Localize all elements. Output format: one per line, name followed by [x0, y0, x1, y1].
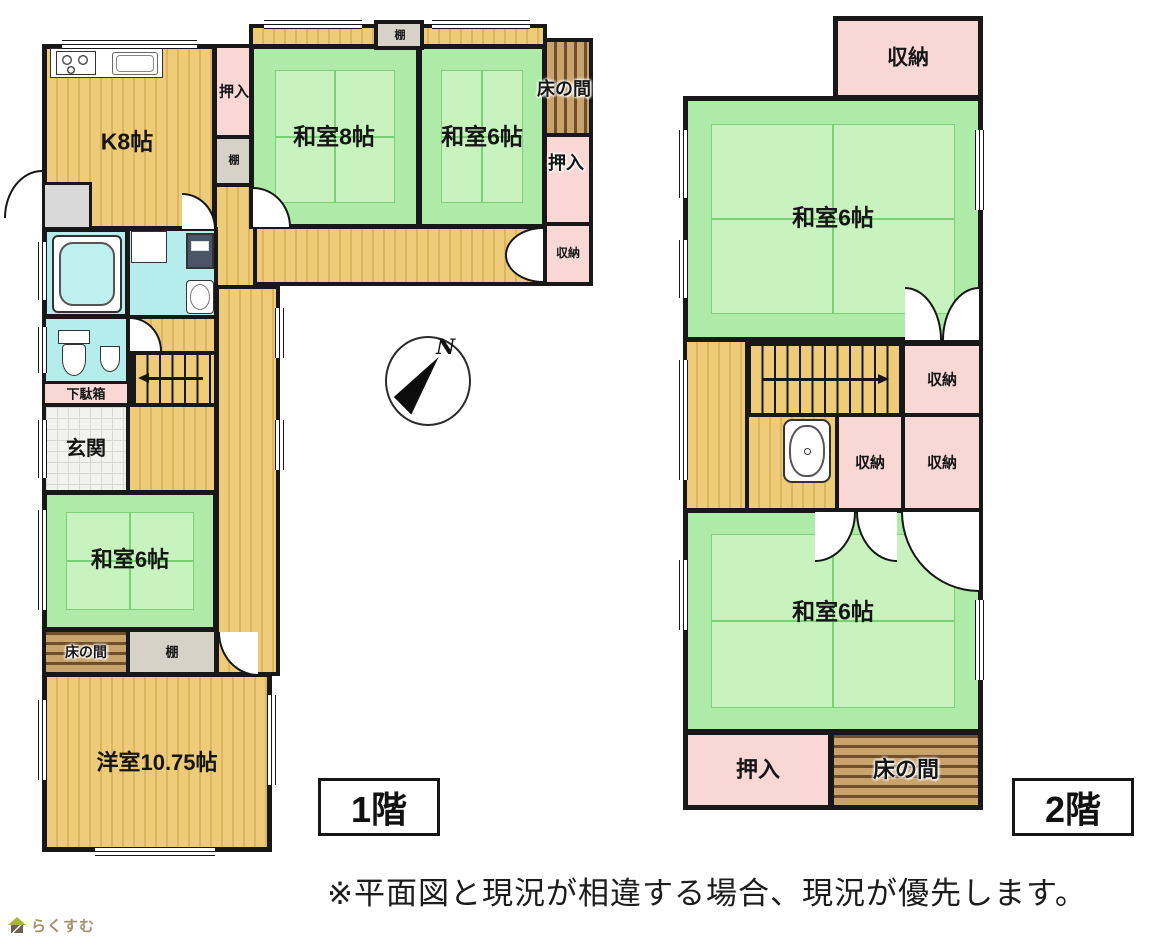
window	[38, 327, 47, 373]
label-genkan: 玄関	[66, 439, 106, 459]
window	[975, 130, 984, 210]
washing-machine-icon	[131, 231, 167, 263]
label-washitsu6-lower-2f: 和室6帖	[792, 601, 874, 624]
toilet-bowl	[62, 344, 86, 376]
label-tokonoma-right: 床の間	[537, 80, 591, 98]
sink-drain-2f	[804, 448, 811, 455]
window	[275, 308, 284, 358]
window	[264, 20, 362, 29]
label-tana-engawa: 棚	[395, 31, 406, 42]
washroom-sink-slot	[191, 241, 209, 251]
toilet-icon	[58, 330, 90, 344]
label-kitchen: K8帖	[101, 131, 153, 154]
logo-text: らくすむ	[31, 915, 95, 936]
bathtub-inner	[59, 242, 115, 306]
compass	[385, 336, 471, 426]
window	[38, 700, 47, 780]
floor2-plan: 収納 和室6帖 収納 収納 収納 和室6帖 押入 床の間	[0, 0, 1165, 944]
label-tana-kitchen: 棚	[229, 156, 240, 167]
label-oshiire-right: 押入	[548, 154, 584, 172]
label-washitsu6-mid: 和室6帖	[91, 549, 169, 571]
window	[38, 420, 47, 478]
label-getabako: 下駄箱	[66, 388, 105, 401]
label-tokonoma-2f: 床の間	[873, 759, 939, 781]
label-oshiire-kitchen: 押入	[219, 85, 249, 100]
disclaimer-text: ※平面図と現況が相違する場合、現況が優先します。	[327, 868, 1087, 913]
label-shuunou-mid-right-2f: 収納	[927, 456, 957, 471]
window	[679, 240, 688, 298]
label-shuunou-right: 収納	[556, 247, 580, 259]
window	[38, 242, 47, 300]
stairs-arrow-line	[148, 377, 203, 380]
window	[95, 847, 215, 856]
window	[679, 130, 688, 198]
label-shuunou-mid-2f: 収納	[855, 456, 885, 471]
window	[679, 360, 688, 480]
rakusumu-logo: らくすむ	[8, 915, 95, 936]
washroom-sink-icon	[186, 233, 214, 269]
label-tana-mid: 棚	[165, 646, 178, 659]
house-body-icon	[11, 925, 23, 933]
stairs-arrow-head-2f	[878, 374, 889, 384]
label-shuunou-top-2f: 収納	[887, 48, 929, 69]
stove-icon	[56, 51, 96, 75]
label-oshiire-2f: 押入	[736, 759, 780, 781]
label-tokonoma-mid: 床の間	[65, 645, 107, 659]
label-youshitsu: 洋室10.75帖	[96, 752, 217, 774]
floorplan-page: { "floor1": { "tag": "1階", "rooms": { "k…	[0, 0, 1165, 944]
window	[975, 600, 984, 680]
stairs-arrow-line-2f	[762, 378, 880, 381]
window	[432, 20, 530, 29]
floor1-tag-box: 1階	[318, 778, 440, 836]
kitchen-sink-basin	[116, 55, 154, 72]
label-shuunou-stairs-2f: 収納	[927, 373, 957, 388]
window	[62, 40, 197, 49]
floor2-tag-label: 2階	[1045, 781, 1101, 833]
label-washitsu6-upper-2f: 和室6帖	[792, 207, 874, 230]
floor1-tag-label: 1階	[351, 781, 407, 833]
hand-basin-icon	[100, 346, 120, 372]
label-washitsu6-upper: 和室6帖	[441, 126, 523, 149]
label-washitsu8: 和室8帖	[293, 126, 375, 149]
stairs-arrow-head	[138, 373, 149, 383]
compass-north-label: N	[436, 334, 455, 359]
house-roof-icon	[8, 917, 26, 925]
window	[267, 695, 276, 785]
vanity-basin	[190, 284, 210, 310]
hall-2f	[683, 338, 749, 512]
floor2-tag-box: 2階	[1012, 778, 1134, 836]
window	[275, 420, 284, 470]
window	[679, 560, 688, 630]
house-icon	[8, 917, 26, 934]
window	[38, 510, 47, 610]
